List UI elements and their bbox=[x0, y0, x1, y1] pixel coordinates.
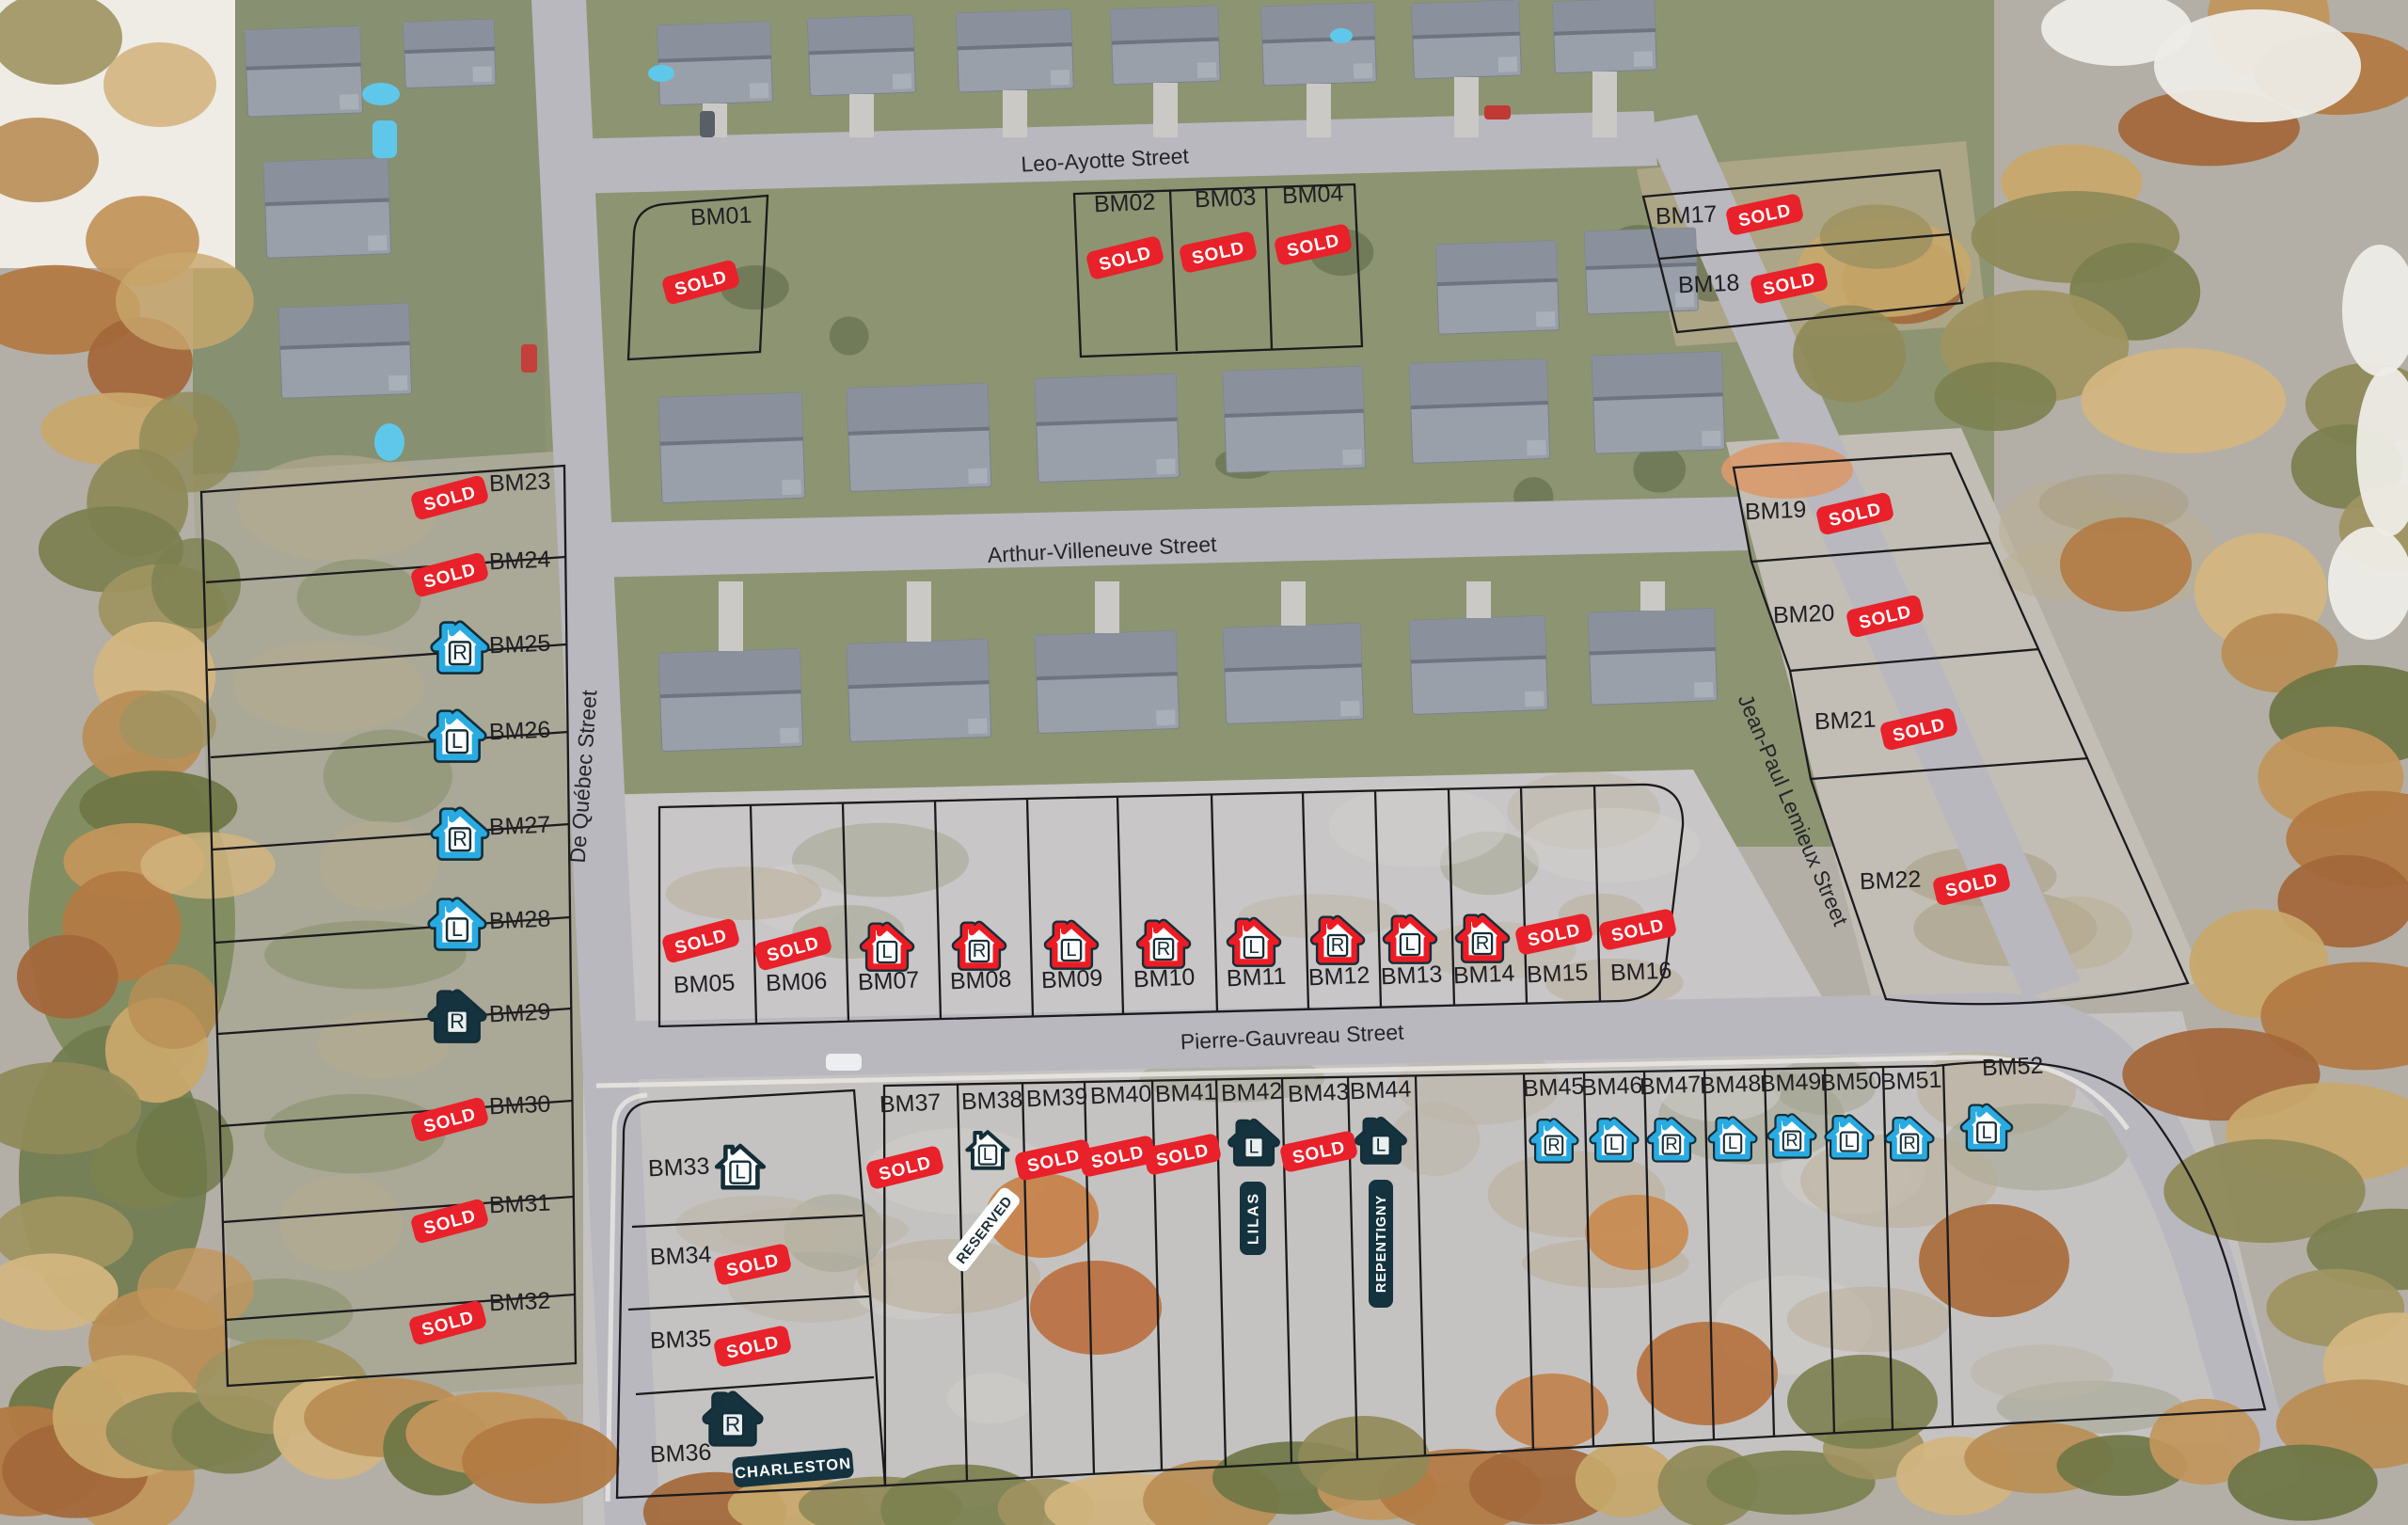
lot-label: BM37 bbox=[879, 1089, 941, 1119]
lot-label: BM48 bbox=[1699, 1071, 1761, 1100]
car bbox=[1484, 105, 1511, 119]
svg-text:L: L bbox=[1728, 1133, 1737, 1152]
lot-label: BM41 bbox=[1154, 1079, 1216, 1108]
lot-label: BM15 bbox=[1526, 960, 1588, 989]
svg-text:L: L bbox=[1609, 1134, 1619, 1153]
svg-text:LILAS: LILAS bbox=[1245, 1192, 1261, 1245]
lot-label: BM25 bbox=[488, 630, 550, 659]
lot-label: BM35 bbox=[649, 1326, 711, 1355]
lot-label: BM16 bbox=[1609, 958, 1671, 987]
svg-text:L: L bbox=[1376, 1136, 1386, 1156]
svg-text:L: L bbox=[451, 917, 463, 941]
lot-label: BM14 bbox=[1452, 961, 1515, 990]
svg-text:R: R bbox=[1903, 1133, 1915, 1152]
existing-house bbox=[657, 22, 773, 105]
existing-house bbox=[847, 639, 991, 741]
svg-text:L: L bbox=[451, 729, 463, 753]
svg-text:R: R bbox=[973, 941, 987, 961]
lot-label: BM52 bbox=[1981, 1053, 2043, 1082]
lot-label: BM13 bbox=[1380, 961, 1442, 991]
svg-text:L: L bbox=[1066, 940, 1076, 961]
existing-house bbox=[1261, 3, 1377, 86]
existing-house bbox=[263, 158, 390, 259]
lot-label: BM11 bbox=[1226, 963, 1287, 993]
existing-house bbox=[245, 26, 362, 117]
svg-text:L: L bbox=[881, 942, 892, 962]
lot-label: BM33 bbox=[647, 1153, 709, 1183]
svg-text:L: L bbox=[1248, 937, 1259, 958]
svg-text:R: R bbox=[452, 641, 467, 664]
lot-label: BM30 bbox=[488, 1091, 550, 1120]
svg-text:R: R bbox=[1476, 933, 1490, 954]
lot-label: BM29 bbox=[488, 999, 550, 1028]
lot-label: BM49 bbox=[1759, 1069, 1821, 1098]
existing-house bbox=[808, 15, 916, 96]
lot-label: BM36 bbox=[649, 1439, 711, 1469]
svg-text:R: R bbox=[452, 827, 467, 850]
car bbox=[826, 1054, 862, 1071]
existing-house bbox=[1223, 623, 1363, 723]
lot-label: BM21 bbox=[1814, 707, 1876, 736]
car bbox=[700, 111, 715, 137]
existing-house bbox=[658, 648, 803, 751]
existing-house bbox=[1412, 0, 1522, 79]
site-plan: Leo-Ayotte Street Arthur-Villeneuve Stre… bbox=[0, 0, 2408, 1525]
car bbox=[521, 344, 537, 373]
lot-label: BM05 bbox=[673, 970, 735, 999]
lot-label: BM28 bbox=[488, 906, 550, 935]
existing-house bbox=[1435, 241, 1559, 334]
swimming-pool bbox=[362, 83, 400, 105]
existing-house bbox=[1035, 630, 1180, 733]
lot-label: BM23 bbox=[488, 469, 550, 498]
swimming-pool bbox=[1330, 28, 1353, 43]
svg-text:L: L bbox=[1404, 934, 1415, 955]
svg-text:L: L bbox=[1249, 1138, 1259, 1158]
svg-text:R: R bbox=[1785, 1130, 1798, 1150]
lot-label: BM46 bbox=[1580, 1072, 1642, 1102]
lot-label: BM20 bbox=[1772, 600, 1834, 629]
lot-label: BM42 bbox=[1220, 1078, 1282, 1107]
existing-house bbox=[1592, 352, 1725, 454]
existing-house bbox=[847, 383, 991, 491]
lot-label: BM27 bbox=[488, 812, 550, 841]
lot-label: BM19 bbox=[1744, 497, 1806, 526]
swimming-pool bbox=[374, 423, 404, 461]
svg-text:L: L bbox=[735, 1162, 746, 1183]
svg-text:R: R bbox=[450, 1009, 465, 1033]
lot-label: BM50 bbox=[1819, 1068, 1881, 1097]
lot-label: BM44 bbox=[1349, 1076, 1412, 1105]
lot-label: BM22 bbox=[1859, 866, 1921, 896]
model-name-badge: REPENTIGNY bbox=[1369, 1180, 1393, 1308]
lot-label: BM24 bbox=[488, 547, 551, 576]
svg-text:R: R bbox=[1157, 939, 1171, 960]
existing-house bbox=[1223, 366, 1366, 472]
existing-house bbox=[1111, 6, 1221, 85]
svg-text:R: R bbox=[725, 1412, 740, 1436]
lot-label: BM18 bbox=[1677, 270, 1739, 299]
svg-text:R: R bbox=[1665, 1134, 1677, 1153]
lot-label: BM38 bbox=[960, 1087, 1022, 1116]
lot-label: BM03 bbox=[1194, 184, 1256, 214]
site-plan-map: Leo-Ayotte Street Arthur-Villeneuve Stre… bbox=[0, 0, 2408, 1525]
lot-label: BM32 bbox=[488, 1288, 550, 1317]
existing-house bbox=[658, 392, 805, 502]
lot-label: BM47 bbox=[1639, 1072, 1701, 1101]
existing-house bbox=[1585, 228, 1699, 314]
lot-label: BM01 bbox=[689, 202, 752, 231]
svg-text:L: L bbox=[1845, 1131, 1854, 1151]
svg-text:R: R bbox=[1331, 935, 1345, 956]
lot-label: BM39 bbox=[1025, 1084, 1087, 1113]
lot-label: BM04 bbox=[1281, 181, 1344, 210]
existing-house bbox=[404, 19, 496, 87]
svg-text:L: L bbox=[1982, 1122, 1992, 1143]
swimming-pool bbox=[372, 120, 397, 158]
lot-label: BM43 bbox=[1287, 1079, 1349, 1108]
swimming-pool bbox=[648, 65, 674, 82]
svg-text:REPENTIGNY: REPENTIGNY bbox=[1374, 1195, 1389, 1293]
existing-house bbox=[1409, 616, 1547, 715]
lot-label: BM06 bbox=[765, 968, 827, 997]
svg-text:L: L bbox=[983, 1144, 992, 1164]
lot-label: BM02 bbox=[1093, 189, 1155, 218]
lot-label: BM17 bbox=[1655, 201, 1717, 230]
lot-label: BM34 bbox=[649, 1242, 712, 1271]
existing-house bbox=[1588, 609, 1717, 706]
existing-house bbox=[1553, 0, 1657, 73]
existing-house bbox=[1409, 358, 1550, 463]
existing-house bbox=[1035, 373, 1180, 482]
lot-label: BM40 bbox=[1089, 1081, 1151, 1110]
lot-label: BM51 bbox=[1879, 1067, 1941, 1096]
model-name-badge: LILAS bbox=[1240, 1182, 1266, 1255]
existing-house bbox=[278, 304, 411, 399]
lot-label: BM12 bbox=[1307, 962, 1370, 992]
lot-label: BM26 bbox=[488, 717, 550, 746]
existing-house bbox=[957, 9, 1074, 92]
lot-label: BM45 bbox=[1522, 1073, 1584, 1103]
lot-label: BM31 bbox=[488, 1190, 550, 1219]
svg-text:R: R bbox=[1547, 1135, 1560, 1154]
